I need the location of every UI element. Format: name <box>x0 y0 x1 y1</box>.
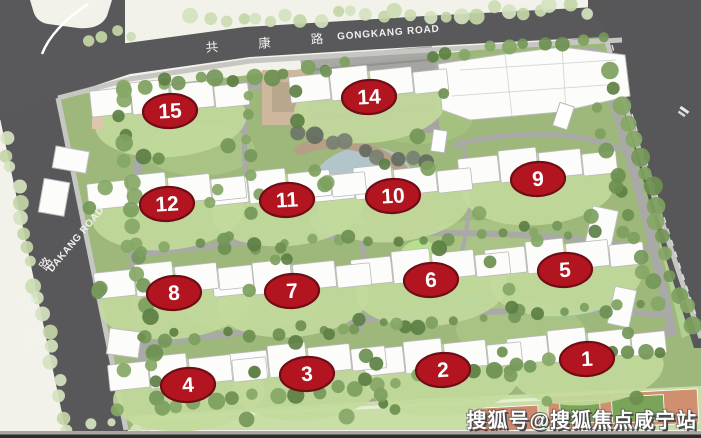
tree-icon <box>273 328 286 341</box>
tree-icon <box>212 184 223 195</box>
tree-icon <box>488 0 501 13</box>
tree-icon <box>43 355 58 370</box>
tree-icon <box>206 69 223 86</box>
tree-icon <box>138 80 153 95</box>
tree-icon <box>123 202 139 218</box>
tree-icon <box>459 49 471 61</box>
tree-icon <box>281 253 293 265</box>
tree-icon <box>339 409 355 425</box>
tree-icon <box>505 301 518 314</box>
tree-icon <box>599 305 612 318</box>
tree-icon <box>622 209 634 221</box>
tree-icon <box>552 221 562 231</box>
tree-icon <box>320 66 332 78</box>
tree-icon <box>620 116 636 132</box>
tree-icon <box>158 334 172 348</box>
tree-icon <box>315 14 329 28</box>
tree-icon <box>43 325 58 340</box>
tree-icon <box>243 109 254 120</box>
tree-icon <box>439 47 452 60</box>
badge-number: 7 <box>286 280 299 304</box>
tree-icon <box>182 8 198 24</box>
badge-number: 4 <box>182 374 195 398</box>
tree-icon <box>627 232 640 245</box>
tree-icon <box>477 229 487 239</box>
tree-icon <box>419 236 428 245</box>
tree-icon <box>584 209 599 224</box>
tree-icon <box>249 13 261 25</box>
tree-icon <box>107 418 115 426</box>
tree-icon <box>221 16 233 28</box>
tree-icon <box>290 114 305 129</box>
tree-icon <box>634 250 649 265</box>
tree-icon <box>542 352 556 366</box>
tree-icon <box>265 16 276 27</box>
tree-icon <box>333 6 344 17</box>
tree-icon <box>616 226 629 239</box>
tree-icon <box>449 316 458 325</box>
tree-icon <box>124 219 140 235</box>
tree-icon <box>115 134 133 152</box>
tree-icon <box>112 25 123 36</box>
tree-icon <box>601 62 619 80</box>
badge-number: 2 <box>437 359 450 383</box>
tree-icon <box>295 320 306 331</box>
tree-icon <box>651 296 666 311</box>
tree-icon <box>247 237 261 251</box>
tree-icon <box>655 229 669 243</box>
tree-icon <box>35 307 50 322</box>
tree-icon <box>609 179 624 194</box>
tree-icon <box>427 51 439 63</box>
tree-icon <box>379 159 390 170</box>
tree-icon <box>196 72 207 83</box>
tree-icon <box>469 9 485 25</box>
tree-icon <box>155 400 171 416</box>
tree-icon <box>117 154 131 168</box>
badge-number: 8 <box>168 282 181 306</box>
badge-number: 3 <box>301 363 314 387</box>
tree-icon <box>246 389 257 400</box>
tree-icon <box>647 213 665 231</box>
tree-icon <box>317 177 332 192</box>
tree-icon <box>270 255 281 266</box>
tree-icon <box>592 102 602 112</box>
badge-number: 5 <box>559 259 572 283</box>
tree-icon <box>247 69 263 85</box>
tree-icon <box>227 75 239 87</box>
tree-icon <box>340 57 351 68</box>
tree-icon <box>390 404 401 415</box>
tree-icon <box>486 362 503 379</box>
tree-icon <box>424 11 437 24</box>
tree-icon <box>306 127 324 145</box>
tree-icon <box>307 234 317 244</box>
tree-icon <box>663 270 675 282</box>
tree-icon <box>270 388 286 404</box>
tree-icon <box>142 308 159 325</box>
tree-icon <box>524 360 537 373</box>
tree-icon <box>578 34 589 45</box>
tree-icon <box>580 303 589 312</box>
tree-icon <box>145 359 157 371</box>
tree-icon <box>188 333 200 345</box>
tree-icon <box>224 231 234 241</box>
side-building <box>106 328 141 358</box>
tree-icon <box>420 161 435 176</box>
tree-icon <box>196 238 206 248</box>
tree-icon <box>369 357 383 371</box>
tree-icon <box>595 128 606 139</box>
tree-icon <box>345 6 356 17</box>
tree-icon <box>4 161 15 172</box>
tree-icon <box>204 197 215 208</box>
tree-icon <box>374 388 388 402</box>
tree-icon <box>1 131 15 145</box>
tree-icon <box>629 391 644 406</box>
tree-icon <box>352 313 365 326</box>
tree-icon <box>497 347 508 358</box>
side-building <box>38 178 70 216</box>
tree-icon <box>519 221 530 232</box>
tree-icon <box>279 9 292 22</box>
tree-icon <box>564 231 572 239</box>
tree-icon <box>116 80 130 94</box>
tree-icon <box>92 281 107 296</box>
badge-number: 12 <box>155 192 180 216</box>
tree-icon <box>239 412 255 428</box>
tree-icon <box>410 128 426 144</box>
tree-icon <box>626 131 643 148</box>
tree-icon <box>684 316 701 334</box>
tree-icon <box>406 151 420 165</box>
tree-icon <box>410 320 425 335</box>
badge-number: 11 <box>275 188 299 212</box>
tree-icon <box>158 73 171 86</box>
label-tag <box>431 129 448 153</box>
tree-icon <box>644 176 663 195</box>
tree-icon <box>45 339 58 352</box>
tree-icon <box>21 241 34 254</box>
tree-icon <box>611 299 622 310</box>
tree-icon <box>607 82 620 95</box>
tree-icon <box>243 284 256 297</box>
tree-icon <box>126 32 136 42</box>
tree-icon <box>54 374 66 386</box>
tree-icon <box>85 418 96 429</box>
tree-icon <box>555 37 570 52</box>
tree-icon <box>278 69 289 80</box>
tree-icon <box>658 247 672 261</box>
tree-icon <box>502 40 517 55</box>
tree-icon <box>225 391 239 405</box>
tree-icon <box>480 314 488 322</box>
tree-icon <box>502 4 517 19</box>
tree-icon <box>581 8 593 20</box>
tree-icon <box>121 240 134 253</box>
site-plan-map: 1234567891011121415 共 康 路 GONGKANG ROAD … <box>0 0 701 438</box>
tree-icon <box>560 307 569 316</box>
watermark: 搜狐号@搜狐焦点咸宁站 <box>466 404 697 433</box>
tree-icon <box>332 380 345 393</box>
tree-icon <box>248 366 261 379</box>
tree-icon <box>243 330 256 343</box>
tree-icon <box>25 256 36 267</box>
tree-icon <box>341 230 355 244</box>
tree-icon <box>472 206 486 220</box>
tree-icon <box>117 92 132 107</box>
tree-icon <box>111 403 124 416</box>
tree-icon <box>638 344 654 360</box>
tree-icon <box>169 328 178 337</box>
tree-icon <box>598 143 614 159</box>
tree-icon <box>301 60 316 75</box>
tree-icon <box>390 318 403 331</box>
tree-icon <box>52 389 65 402</box>
tree-icon <box>223 327 233 337</box>
badge-number: 14 <box>357 85 382 109</box>
tree-icon <box>531 234 544 247</box>
tree-icon <box>613 96 632 115</box>
tree-icon <box>387 3 402 18</box>
tree-icon <box>239 13 250 24</box>
badge-number: 1 <box>581 348 594 372</box>
tree-icon <box>485 41 496 52</box>
tree-icon <box>13 210 28 225</box>
tree-icon <box>244 149 257 162</box>
tree-icon <box>17 228 30 241</box>
tree-icon <box>359 8 372 21</box>
tree-icon <box>289 85 302 98</box>
tree-icon <box>244 207 257 220</box>
tree-icon <box>137 333 145 341</box>
badge-number: 6 <box>425 269 438 293</box>
tree-icon <box>431 240 447 256</box>
tree-icon <box>621 346 634 359</box>
tree-icon <box>655 347 666 358</box>
tree-icon <box>112 110 124 122</box>
tree-icon <box>245 170 256 181</box>
tree-icon <box>498 228 507 237</box>
tree-icon <box>425 316 438 329</box>
tree-icon <box>158 241 169 252</box>
tree-icon <box>136 246 147 257</box>
tree-icon <box>57 412 70 425</box>
tree-icon <box>517 8 530 21</box>
tree-icon <box>136 149 152 165</box>
tree-icon <box>531 307 544 320</box>
tree-icon <box>539 37 552 50</box>
badge-number: 15 <box>158 99 183 123</box>
tree-icon <box>631 148 650 167</box>
tree-icon <box>390 378 401 389</box>
tree-icon <box>13 195 29 211</box>
tree-icon <box>404 9 416 21</box>
tree-icon <box>391 152 405 166</box>
tree-icon <box>293 14 306 27</box>
tree-icon <box>358 372 372 386</box>
tree-icon <box>363 236 373 246</box>
tree-icon <box>146 344 164 362</box>
tree-icon <box>96 31 108 43</box>
tree-icon <box>288 335 303 350</box>
tree-icon <box>83 35 94 46</box>
tree-icon <box>98 180 113 195</box>
tree-icon <box>484 256 497 269</box>
tree-icon <box>441 12 452 23</box>
tree-icon <box>454 9 470 25</box>
tree-icon <box>622 327 634 339</box>
badge-number: 10 <box>381 184 406 208</box>
tree-icon <box>208 393 225 410</box>
tree-icon <box>323 328 335 340</box>
tree-icon <box>153 153 165 165</box>
image-bottom-border <box>0 435 701 438</box>
tree-icon <box>503 283 516 296</box>
tree-icon <box>680 298 695 313</box>
tree-icon <box>117 363 131 377</box>
tree-icon <box>338 324 349 335</box>
tree-icon <box>13 180 27 194</box>
tree-icon <box>636 300 644 308</box>
tree-icon <box>171 76 185 90</box>
tree-icon <box>517 38 528 49</box>
site-plan-screenshot: 1234567891011121415 共 康 路 GONGKANG ROAD … <box>0 0 701 438</box>
badge-number: 9 <box>532 168 545 192</box>
tree-icon <box>244 91 254 101</box>
tree-icon <box>438 88 449 99</box>
tree-icon <box>309 164 322 177</box>
tree-icon <box>589 225 602 238</box>
tree-icon <box>635 265 650 280</box>
tree-icon <box>394 237 404 247</box>
tree-icon <box>221 138 236 153</box>
tree-icon <box>204 12 217 25</box>
tree-icon <box>510 358 524 372</box>
tree-icon <box>599 32 609 42</box>
tree-icon <box>275 242 286 253</box>
tree-icon <box>337 133 353 149</box>
tree-icon <box>241 135 251 145</box>
tree-icon <box>380 318 388 326</box>
